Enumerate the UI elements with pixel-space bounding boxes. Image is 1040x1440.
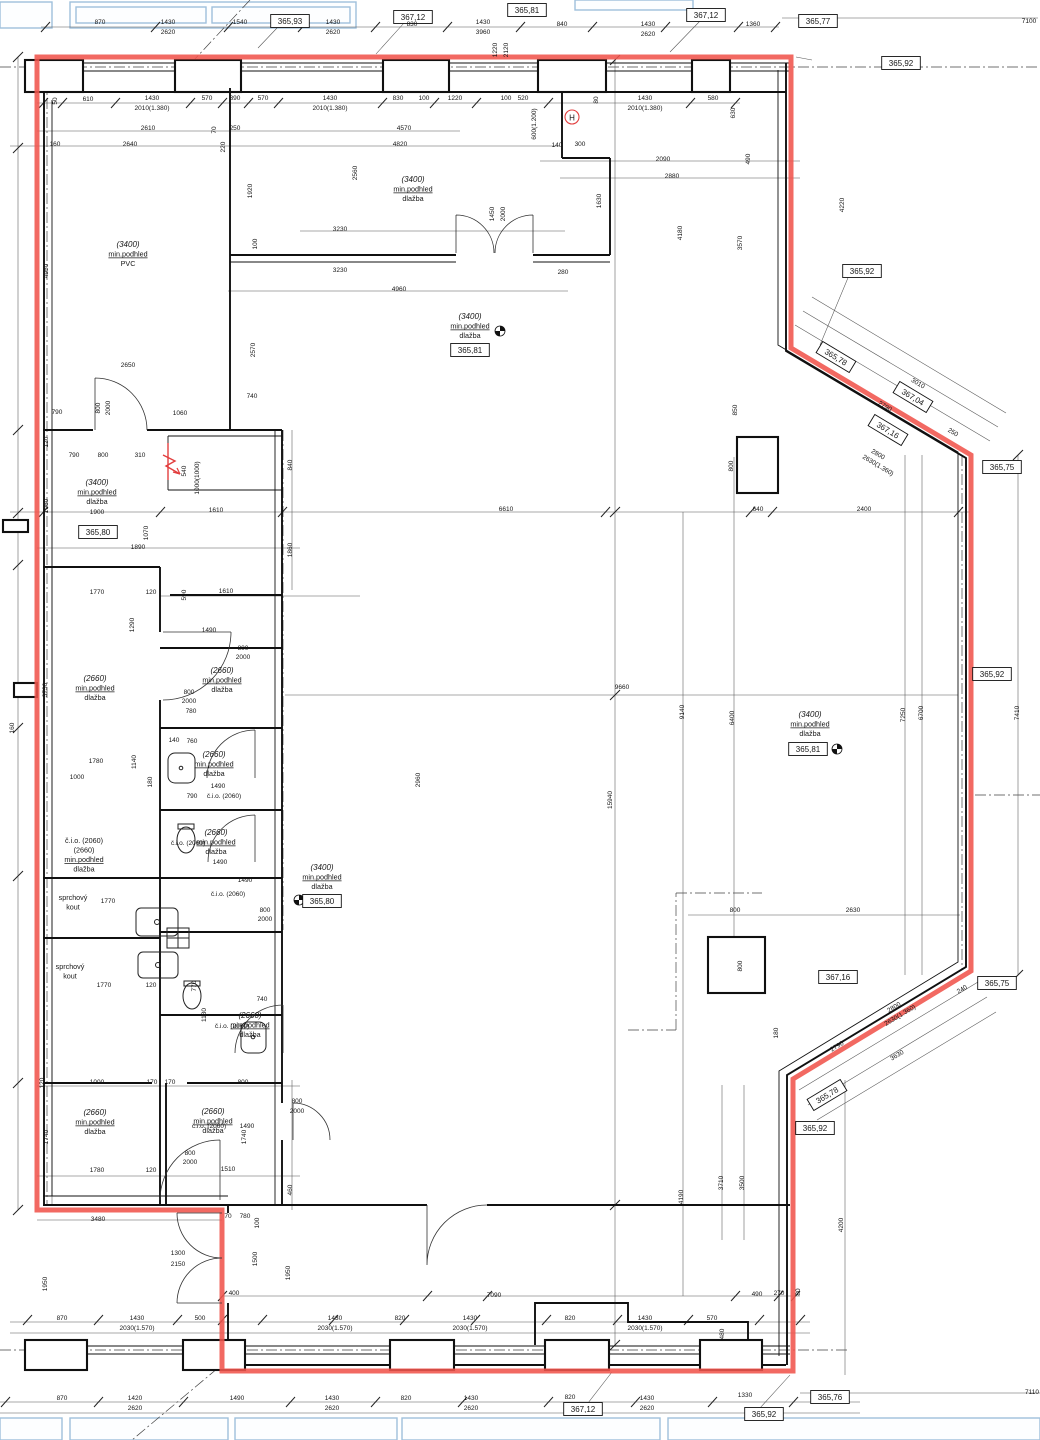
dimension-label: 400 (229, 1290, 240, 1297)
dimension-label: 120 (146, 589, 157, 596)
dimension-label: č.i.o. (2060) (207, 793, 241, 800)
dimension-label: 1070 (143, 525, 150, 540)
dimension-label: 2620 (161, 29, 176, 36)
dimension-label: 630 (730, 107, 737, 118)
dimension-label: 480 (719, 1328, 726, 1339)
dimension-label: 1860 (287, 542, 294, 557)
dimension-label: 2030(1.570) (627, 1325, 662, 1332)
dimension-label: 4570 (397, 125, 412, 132)
dimension-label: 80 (593, 96, 600, 104)
room-label: min.podhled (75, 1118, 114, 1127)
dimension-label: 1430 (326, 19, 341, 26)
floorplan-drawing: H 365,93367,12365,81367,12365,77365,9236… (0, 0, 1040, 1440)
dimension-label: 100 (254, 1217, 261, 1228)
dimension-label: 1430 (328, 1315, 343, 1322)
room-label: kout (66, 903, 80, 912)
dimension-label: 800 (238, 645, 249, 652)
dimension-label: 1000 (90, 1079, 105, 1086)
dimension-label: 9140 (679, 704, 686, 719)
elevation-box: 365,92 (745, 1408, 784, 1421)
dimension-label: 120 (39, 1077, 46, 1088)
room-label: (2660) (201, 1107, 224, 1116)
room-label: dlažba (86, 497, 107, 506)
dimension-label: 4190 (678, 1189, 685, 1204)
dimension-label: 7410 (1014, 705, 1021, 720)
dimension-label: 840 (557, 21, 568, 28)
dimension-label: 3570 (737, 235, 744, 250)
dimension-label: 580 (708, 95, 719, 102)
dimension-label: 180 (773, 1027, 780, 1038)
dimension-label: 800 (292, 1098, 303, 1105)
dimension-ticks (1, 22, 1023, 1407)
dimension-label: 300 (575, 141, 586, 148)
elevation-box: 365,81 (508, 4, 547, 17)
room-label: min.podhled (790, 720, 829, 729)
dimension-label: 4180 (677, 225, 684, 240)
svg-text:H: H (569, 114, 575, 123)
dimension-label: 520 (518, 95, 529, 102)
room-label: (2660) (204, 828, 227, 837)
dimension-label: 140 (552, 142, 563, 149)
elevation-box: 365,93 (271, 15, 310, 28)
dimension-label: č.i.o. (2060) (215, 1023, 249, 1030)
room-label: dlažba (402, 194, 423, 203)
dimension-label: 1740 (43, 1129, 50, 1144)
dimension-label: 1430 (476, 19, 491, 26)
dimension-label: 1130 (201, 1008, 208, 1022)
dimension-label: 1060 (173, 410, 188, 417)
dimension-label: 2620 (464, 1405, 479, 1412)
elevation-value: 367,12 (571, 1405, 596, 1414)
dimension-label: 2010(1.380) (312, 105, 347, 112)
room-label: (3400) (116, 240, 139, 249)
dimension-label: 1950 (42, 1276, 49, 1291)
dimension-label: 6700 (918, 705, 925, 720)
dimension-label: 500 (195, 1315, 206, 1322)
dimension-label: 800 (184, 689, 195, 696)
dimension-label: 1220 (492, 42, 499, 57)
dimension-labels: 8701430262015401430262083014303960122021… (9, 18, 1039, 1412)
room-label: dlažba (311, 882, 332, 891)
dimension-label: 1490 (240, 1123, 255, 1130)
dimension-label: 1430 (640, 1395, 655, 1402)
room-label: (3400) (401, 175, 424, 184)
room-label: dlažba (211, 685, 232, 694)
elevation-box: 365,80 (79, 526, 118, 539)
dimension-label: 2650 (121, 362, 136, 369)
dimension-label: 180 (147, 776, 154, 787)
room-label: min.podhled (450, 322, 489, 331)
dimension-label: 540 (181, 465, 188, 476)
room-label: (2660) (74, 846, 95, 855)
dimension-label: 4950 (43, 263, 50, 278)
dimension-label: 270 (774, 1290, 785, 1297)
dimension-label: 1780 (89, 758, 104, 765)
dimension-label: 800 (260, 907, 271, 914)
elevation-box: 367,04 (893, 381, 933, 412)
dimension-label: 2620 (640, 1405, 655, 1412)
elevation-box: 365,80 (303, 895, 342, 908)
shower-tray (138, 952, 178, 978)
dimension-label: 740 (257, 996, 268, 1003)
dimension-label: 2620 (326, 29, 341, 36)
dimension-label: 1490 (230, 1395, 245, 1402)
dimension-label: č.i.o. (2060) (171, 840, 205, 847)
hydrant-icon: H (565, 110, 579, 124)
dimension-label: 70 (224, 1213, 232, 1220)
dimension-label: 1430 (325, 1395, 340, 1402)
dimension-label: 1430 (464, 1395, 479, 1402)
dimension-label: 490 (752, 1291, 763, 1298)
dimension-label: 820 (395, 1315, 406, 1322)
dimension-label: 640 (753, 506, 764, 513)
dimension-label: 170 (147, 1079, 158, 1086)
elevation-value: 365,92 (980, 670, 1005, 679)
dimension-label: 2030(1.570) (317, 1325, 352, 1332)
elevation-value: 365,92 (850, 267, 875, 276)
dimension-label: 2010(1.380) (627, 105, 662, 112)
dimension-label: 790 (187, 793, 198, 800)
room-label: (2660) (202, 750, 225, 759)
room-label: dlažba (239, 1030, 260, 1039)
room-label: dlažba (799, 729, 820, 738)
dimension-label: 1490 (213, 859, 228, 866)
dimension-label: 160 (50, 141, 61, 148)
dimension-label: 3230 (333, 267, 348, 274)
dimension-label: 2000 (182, 698, 197, 705)
dimension-label: 760 (187, 738, 198, 745)
room-label: (3400) (798, 710, 821, 719)
dimension-label: 9660 (615, 684, 630, 691)
dimension-label: 6610 (499, 506, 514, 513)
elevation-value: 365,81 (458, 346, 483, 355)
room-label: min.podhled (194, 760, 233, 769)
elevation-box: 365,92 (973, 668, 1012, 681)
dimension-label: 1510 (221, 1166, 236, 1173)
dimension-label: 1740 (241, 1129, 248, 1144)
dimension-label: 310 (135, 452, 146, 459)
elevation-value: 365,76 (818, 1393, 843, 1402)
dimension-label: 800 (730, 907, 741, 914)
dimension-label: 2400 (857, 506, 872, 513)
dimension-label: 7090 (487, 1292, 502, 1299)
room-label: dlažba (73, 865, 94, 874)
dimension-label: 2880 (665, 173, 680, 180)
room-label: (3400) (458, 312, 481, 321)
elevation-value: 365,80 (310, 897, 335, 906)
dimension-label: 2000 (105, 400, 112, 415)
dimension-label: 220 (220, 141, 227, 152)
dimension-label: 15940 (607, 791, 614, 809)
dimension-label: 570 (707, 1315, 718, 1322)
dimension-label: 780 (240, 1213, 251, 1220)
dimension-label: 740 (247, 393, 258, 400)
dimension-label: 2000 (183, 1159, 198, 1166)
dimension-label: 2000 (236, 654, 251, 661)
dimension-label: 1430 (145, 95, 160, 102)
room-label: kout (63, 972, 77, 981)
elevation-box: 367,16 (819, 971, 858, 984)
dimension-label: 2030(1.570) (119, 1325, 154, 1332)
dimension-label: 600(1.200) (531, 108, 538, 139)
elevation-box: 365,92 (882, 57, 921, 70)
dimension-label: 590 (181, 589, 188, 600)
dimension-label: 800 (98, 452, 109, 459)
dimension-label: 6400 (729, 710, 736, 725)
elevation-box: 365,76 (811, 1391, 850, 1404)
dimension-label: 2960 (415, 772, 422, 787)
sanitary-fixtures (136, 753, 266, 1053)
elevation-value: 365,92 (889, 59, 914, 68)
dimension-label: 1770 (101, 898, 116, 905)
dimension-label: 790 (69, 452, 80, 459)
dimension-label: 3480 (91, 1216, 106, 1223)
dimension-label: 1140 (131, 755, 138, 769)
room-label: min.podhled (202, 676, 241, 685)
dimension-label: 390 (230, 95, 241, 102)
dimension-label: 4200 (838, 1217, 845, 1232)
dimension-label: 1960 (43, 498, 50, 513)
dimension-label: 1420 (128, 1395, 143, 1402)
elevation-value: 367,12 (694, 11, 719, 20)
dimension-label: 800 (238, 1079, 249, 1086)
dimension-label: 1610 (209, 507, 224, 514)
dimension-label: 2620 (325, 1405, 340, 1412)
dimension-label: 7250 (900, 707, 907, 722)
room-label: (3400) (310, 863, 333, 872)
dimension-label: 50 (52, 97, 59, 105)
dimension-label: 2630 (846, 907, 861, 914)
dimension-label: 2560 (352, 165, 359, 180)
dimension-label: 570 (258, 95, 269, 102)
dimension-label: 1890 (131, 544, 146, 551)
room-label: min.podhled (77, 488, 116, 497)
dimension-label: 100 (501, 95, 512, 102)
dimension-label: 1360 (746, 21, 761, 28)
room-label: sprchový (56, 962, 85, 971)
dimension-label: 1330 (738, 1392, 753, 1399)
elevation-box: 365,77 (799, 15, 838, 28)
dimension-label: 820 (565, 1394, 576, 1401)
dimension-label: 1490 (202, 627, 217, 634)
dimension-label: 2610 (141, 125, 156, 132)
room-label: dlažba (84, 1127, 105, 1136)
dimension-label: 1780 (90, 1167, 105, 1174)
room-label: min.podhled (64, 855, 103, 864)
dimension-label: 3710 (718, 1175, 725, 1190)
dimension-label: 2620 (641, 31, 656, 38)
elevation-box: 365,81 (451, 344, 490, 357)
dimension-label: 460 (287, 1184, 294, 1195)
dimension-label: 2000 (258, 916, 273, 923)
dimension-label: 870 (57, 1395, 68, 1402)
dimension-label: 830 (407, 21, 418, 28)
room-label: sprchový (59, 893, 88, 902)
room-label: (2660) (83, 1108, 106, 1117)
elevation-box: 367,12 (687, 9, 726, 22)
dimension-label: 2090 (656, 156, 671, 163)
dimension-label: 610 (83, 96, 94, 103)
elevation-box: 365,92 (843, 265, 882, 278)
dimension-label: 3500 (739, 1175, 746, 1190)
dimension-chains (0, 18, 1040, 1413)
dimension-label: 2120 (503, 42, 510, 57)
dimension-label: 770 (191, 980, 198, 991)
dimension-label: 1430 (323, 95, 338, 102)
room-label: (2660) (238, 1011, 261, 1020)
dimension-label: 1430 (638, 95, 653, 102)
elevation-value: 365,81 (515, 6, 540, 15)
room-label: dlažba (459, 331, 480, 340)
dimension-label: 250 (230, 125, 241, 132)
room-label: (2660) (210, 666, 233, 675)
room-label: min.podhled (108, 250, 147, 259)
elevation-value: 367,16 (826, 973, 851, 982)
dimension-label: 2000 (290, 1108, 305, 1115)
elevation-value: 365,81 (796, 745, 821, 754)
dimension-label: 1450 (489, 206, 496, 221)
dimension-label: 140 (169, 737, 180, 744)
dimension-label: 1430 (463, 1315, 478, 1322)
dimension-label: 4820 (393, 141, 408, 148)
dimension-label: 840 (287, 459, 294, 470)
room-label: PVC (121, 259, 136, 268)
elevation-value: 365,77 (806, 17, 831, 26)
room-label: min.podhled (75, 684, 114, 693)
dimension-label: 3730 (42, 682, 49, 697)
dimension-label: č.i.o. (2060) (192, 1123, 226, 1130)
elevation-value: 365,75 (985, 979, 1010, 988)
elevation-box: 365,92 (796, 1122, 835, 1135)
dimension-label: 100 (419, 95, 430, 102)
room-label: min.podhled (302, 873, 341, 882)
dimension-label: 3960 (476, 29, 491, 36)
dimension-label: 870 (57, 1315, 68, 1322)
dimension-label: 1430 (161, 19, 176, 26)
elevation-box: 365,81 (789, 743, 828, 756)
dimension-label: 800 (737, 960, 744, 971)
dimension-label: 800 (185, 1150, 196, 1157)
dimension-label: 80 (795, 1288, 802, 1296)
dimension-label: 4220 (839, 197, 846, 212)
dimension-label: 570 (202, 95, 213, 102)
dimension-label: 1770 (97, 982, 112, 989)
elevation-value: 365,92 (752, 1410, 777, 1419)
dimension-label: 800 (728, 460, 735, 471)
dimension-label: 1220 (448, 95, 463, 102)
room-label: (2660) (83, 674, 106, 683)
dimension-label: 160 (9, 722, 16, 733)
room-label: dlažba (203, 769, 224, 778)
elevation-box: 367,12 (564, 1403, 603, 1416)
dimension-label: 2570 (250, 342, 257, 357)
axis-dashdot-lines (0, 0, 1040, 1440)
dimension-label: 1610 (219, 588, 234, 595)
elevation-box: 365,75 (978, 977, 1017, 990)
dimension-label: 1500 (252, 1251, 259, 1266)
dimension-label: 2640 (123, 141, 138, 148)
dimension-label: 820 (401, 1395, 412, 1402)
dimension-label: 820 (565, 1315, 576, 1322)
elevation-value: 365,93 (278, 17, 303, 26)
dimension-label: 1630 (596, 193, 603, 208)
dimension-label: 120 (43, 436, 50, 447)
dimension-label: 1490 (211, 783, 226, 790)
dimension-label: 1430 (638, 1315, 653, 1322)
scope-boundary-red (37, 57, 971, 1371)
dimension-label: 1490 (238, 877, 253, 884)
dimension-label: 2620 (128, 1405, 143, 1412)
dimension-label: 490 (745, 153, 752, 164)
dimension-label: č.i.o. (2060) (211, 891, 245, 898)
floorplan-sheet: H 365,93367,12365,81367,12365,77365,9236… (0, 0, 1040, 1440)
dimension-label: 2000 (500, 206, 507, 221)
dimension-label: 120 (146, 1167, 157, 1174)
dimension-label: 3230 (333, 226, 348, 233)
dimension-label: 1300 (171, 1250, 186, 1257)
dimension-label: 2030(1.570) (452, 1325, 487, 1332)
dimension-label: 70 (211, 126, 218, 134)
dimension-label: 1770 (90, 589, 105, 596)
dimension-label: 240 (956, 984, 969, 996)
electrical-flash-icon (163, 443, 180, 480)
dimension-label: 1920 (247, 183, 254, 198)
washbasin (168, 753, 195, 783)
dimension-label: 1430 (130, 1315, 145, 1322)
dimension-label: 250 (946, 427, 959, 439)
room-label: dlažba (205, 847, 226, 856)
room-label: dlažba (84, 693, 105, 702)
dimension-label: 1000(1000) (194, 461, 201, 494)
elevation-value: 365,75 (990, 463, 1015, 472)
dimension-label: 170 (165, 1079, 176, 1086)
dimension-label: 830 (393, 95, 404, 102)
dimension-label: 1290 (129, 617, 136, 632)
dimension-label: 1900 (90, 509, 105, 516)
elevation-box: 365,75 (983, 461, 1022, 474)
dimension-label: 1950 (285, 1265, 292, 1280)
survey-point-icon (495, 326, 505, 336)
elevation-value: 365,92 (803, 1124, 828, 1133)
dimension-label: 1000 (70, 774, 85, 781)
dimension-label: 780 (186, 708, 197, 715)
elevation-value: 365,80 (86, 528, 111, 537)
survey-point-icon (832, 744, 842, 754)
dimension-label: 790 (52, 409, 63, 416)
dimension-label: 280 (558, 269, 569, 276)
dimension-label: 850 (732, 404, 739, 415)
dimension-label: 800 (95, 402, 102, 413)
room-label: (3400) (85, 478, 108, 487)
dimension-label: 100 (252, 238, 259, 249)
dimension-label: 7110 (1025, 1389, 1039, 1396)
dimension-label: 2150 (171, 1261, 186, 1268)
dimension-label: 1430 (641, 21, 656, 28)
room-label: č.i.o. (2060) (65, 836, 103, 845)
dimension-label: 4960 (392, 286, 407, 293)
dimension-label: 3630 (889, 1049, 905, 1063)
dimension-label: 870 (95, 19, 106, 26)
adjacent-blue-band-bottom (0, 1418, 1040, 1440)
dimension-label: 120 (146, 982, 157, 989)
room-label: min.podhled (393, 185, 432, 194)
dimension-label: 2010(1.380) (134, 105, 169, 112)
dimension-label: 1540 (233, 19, 248, 26)
dimension-label: 7100 (1022, 18, 1037, 25)
